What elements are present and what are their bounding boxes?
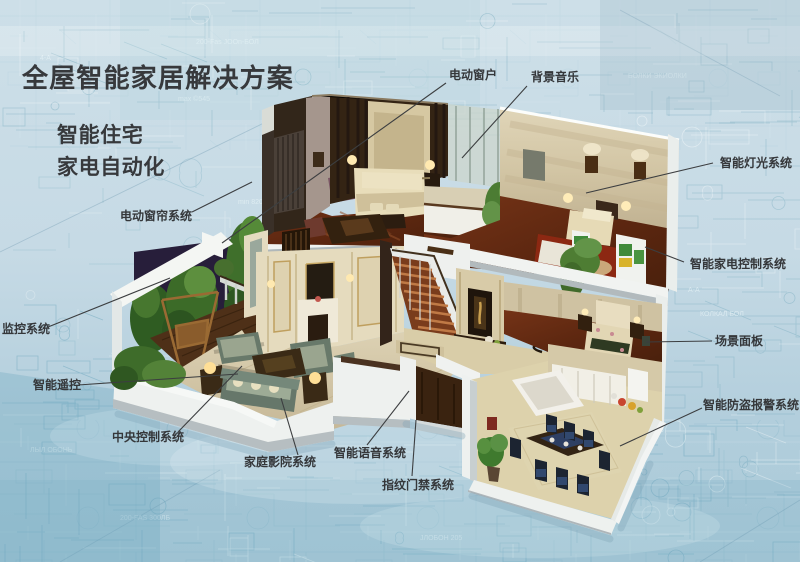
svg-text:min 820: min 820 [238, 199, 263, 206]
svg-text:家庭影院系统: 家庭影院系统 [244, 454, 316, 469]
svg-text:背景音乐: 背景音乐 [531, 69, 579, 84]
svg-text:场景面板: 场景面板 [715, 333, 764, 348]
svg-text:智能遥控: 智能遥控 [32, 377, 81, 392]
svg-text:指纹门禁系统: 指纹门禁系统 [382, 477, 454, 492]
svg-text:智能住宅: 智能住宅 [57, 123, 143, 147]
svg-text:А-А: А-А [688, 287, 700, 294]
svg-text:智能防盗报警系统: 智能防盗报警系统 [702, 397, 799, 412]
svg-text:电动窗户: 电动窗户 [449, 67, 497, 82]
svg-text:4-A: 4-A [40, 55, 51, 62]
svg-text:家电自动化: 家电自动化 [57, 155, 165, 179]
svg-text:全屋智能家居解决方案: 全屋智能家居解决方案 [21, 63, 294, 93]
svg-text:КОЛКАЛ БОЛ: КОЛКАЛ БОЛ [700, 311, 744, 318]
svg-text:电动窗帘系统: 电动窗帘系统 [120, 208, 192, 223]
svg-text:智能语音系统: 智能语音系统 [333, 445, 406, 460]
svg-text:智能家电控制系统: 智能家电控制系统 [689, 256, 786, 271]
svg-text:中央控制系统: 中央控制系统 [112, 429, 184, 444]
svg-text:智能灯光系统: 智能灯光系统 [719, 155, 792, 170]
svg-text:监控系统: 监控系统 [2, 321, 50, 336]
